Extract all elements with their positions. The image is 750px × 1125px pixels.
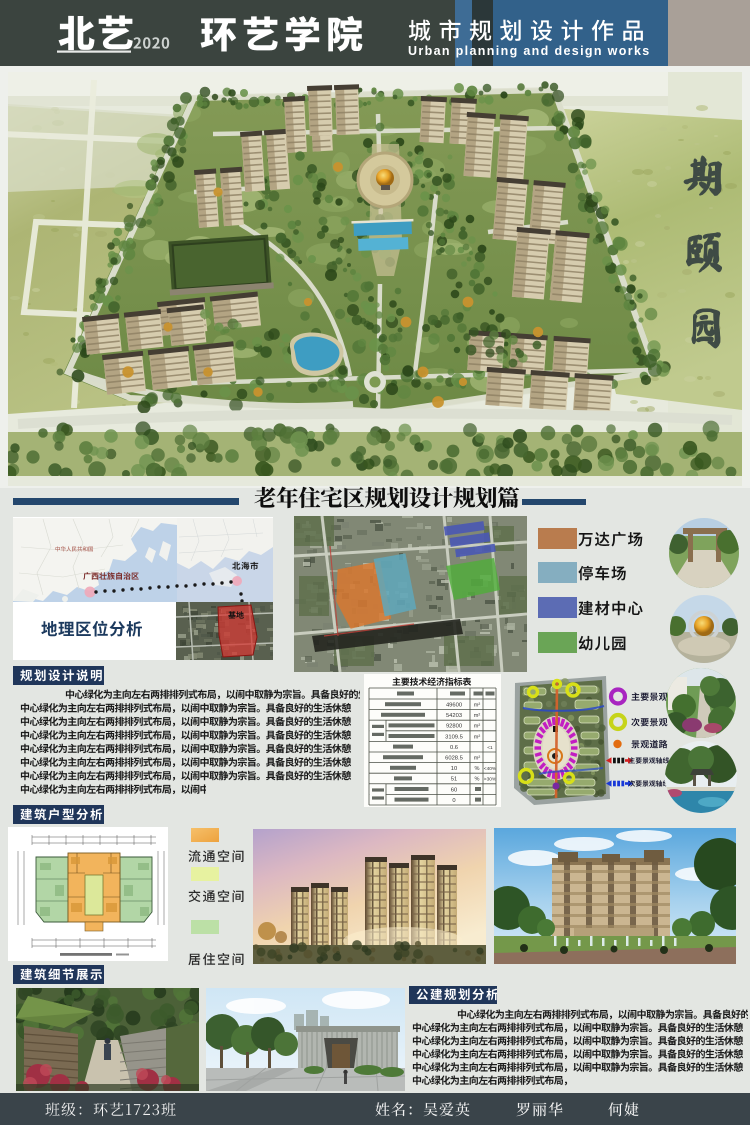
svg-text:<1: <1 [487, 745, 493, 751]
svg-text:%: % [475, 777, 480, 783]
svg-text:0.6: 0.6 [450, 745, 458, 751]
svg-text:%: % [475, 766, 480, 772]
svg-text:60: 60 [451, 787, 457, 793]
svg-text:<40%: <40% [484, 766, 497, 772]
svg-text:0: 0 [452, 798, 455, 804]
svg-text:m²: m² [474, 724, 481, 730]
svg-text:10: 10 [451, 766, 457, 772]
svg-text:51: 51 [451, 777, 457, 783]
svg-text:m²: m² [474, 703, 481, 709]
svg-text:>30%: >30% [484, 777, 497, 783]
svg-text:Urban planning and design work: Urban planning and design works [408, 44, 651, 58]
svg-text:3109.5: 3109.5 [445, 734, 463, 740]
svg-text:92800: 92800 [446, 724, 462, 730]
svg-text:m²: m² [474, 734, 481, 740]
svg-text:54203: 54203 [446, 713, 462, 719]
svg-text:49600: 49600 [446, 703, 462, 709]
svg-text:m²: m² [474, 713, 481, 719]
svg-text:6028.5: 6028.5 [445, 756, 463, 762]
svg-text:m²: m² [474, 756, 481, 762]
